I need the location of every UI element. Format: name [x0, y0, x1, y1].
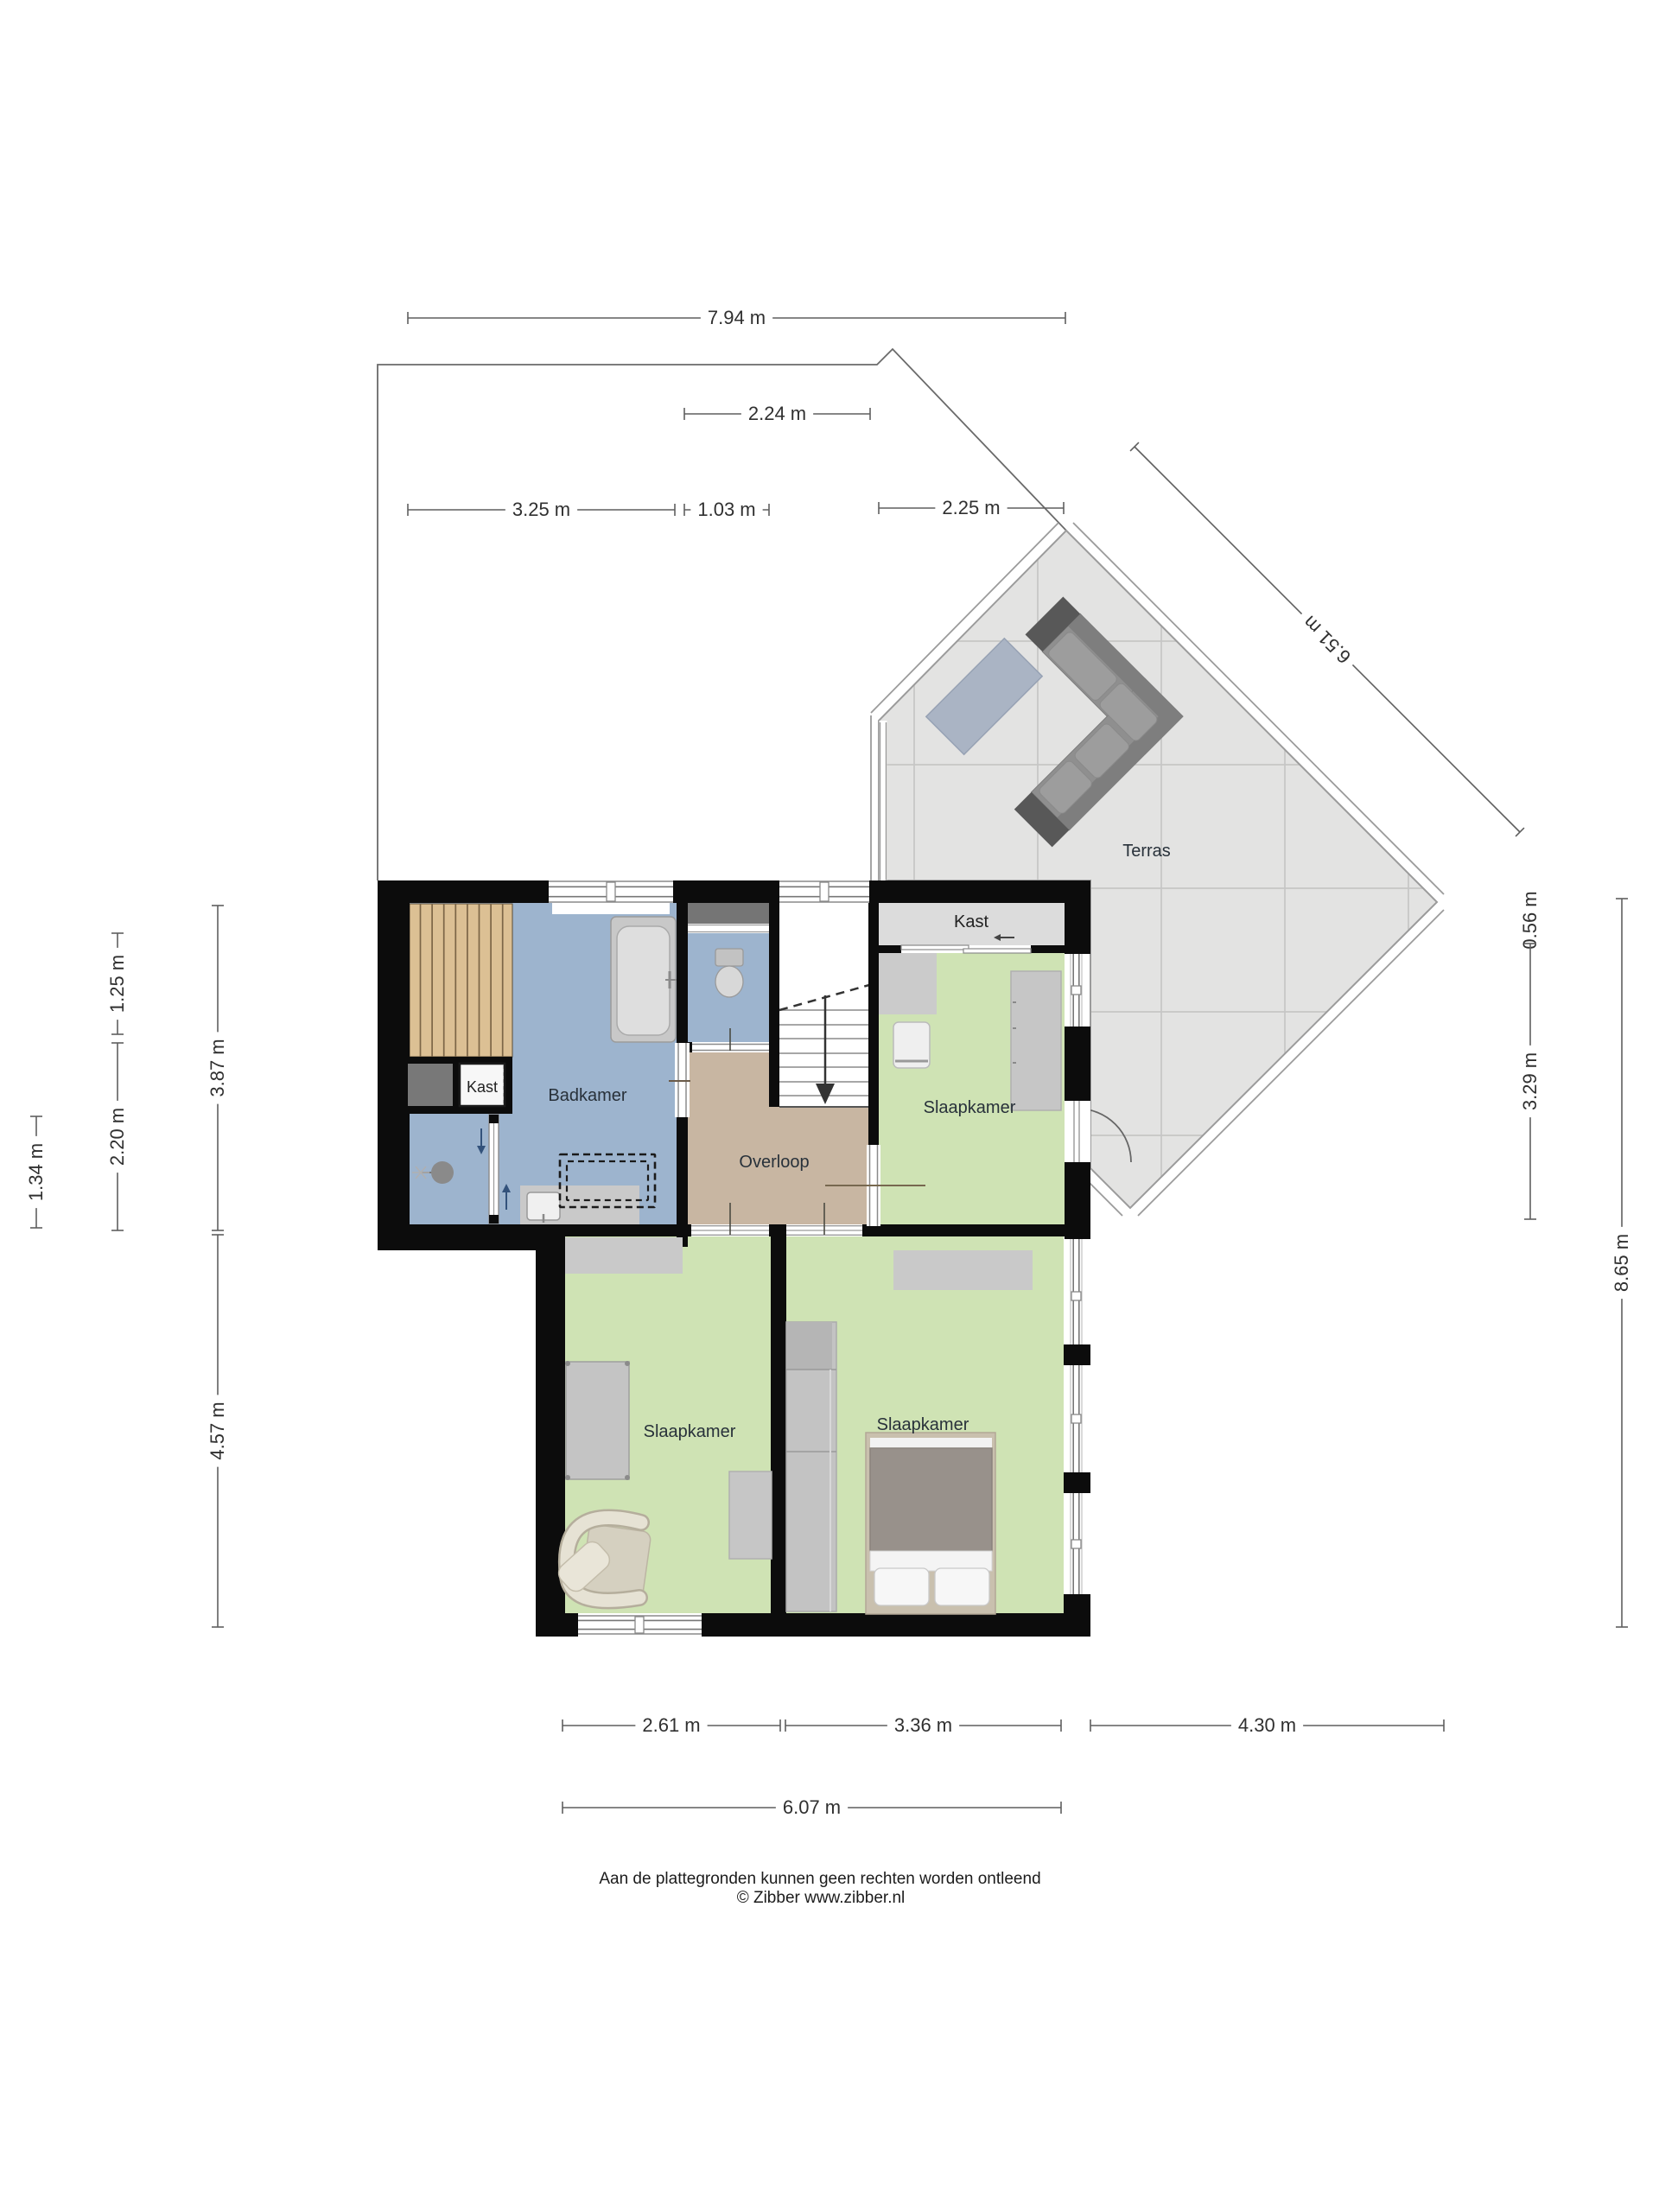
svg-text:2.24 m: 2.24 m	[748, 403, 806, 424]
svg-text:© Zibber www.zibber.nl: © Zibber www.zibber.nl	[737, 1889, 906, 1907]
svg-text:Kast: Kast	[467, 1078, 498, 1096]
svg-text:4.30 m: 4.30 m	[1238, 1714, 1296, 1736]
svg-text:Aan de plattegronden kunnen ge: Aan de plattegronden kunnen geen rechten…	[599, 1870, 1040, 1888]
svg-text:7.94 m: 7.94 m	[708, 307, 766, 328]
svg-text:6.07 m: 6.07 m	[783, 1796, 841, 1818]
svg-text:4.57 m: 4.57 m	[207, 1402, 228, 1459]
svg-text:Slaapkamer: Slaapkamer	[644, 1422, 736, 1441]
svg-text:3.25 m: 3.25 m	[512, 499, 570, 520]
svg-text:Overloop: Overloop	[739, 1153, 809, 1172]
svg-text:2.25 m: 2.25 m	[942, 497, 1000, 518]
svg-text:Badkamer: Badkamer	[548, 1086, 626, 1105]
svg-text:3.87 m: 3.87 m	[207, 1039, 228, 1096]
svg-text:1.34 m: 1.34 m	[25, 1143, 47, 1201]
svg-text:Slaapkamer: Slaapkamer	[877, 1415, 969, 1434]
svg-text:8.65 m: 8.65 m	[1611, 1234, 1632, 1292]
svg-text:Terras: Terras	[1122, 842, 1171, 861]
svg-text:2.20 m: 2.20 m	[106, 1108, 128, 1166]
svg-text:3.29 m: 3.29 m	[1519, 1052, 1541, 1110]
svg-text:Slaapkamer: Slaapkamer	[924, 1098, 1016, 1117]
svg-text:1.25 m: 1.25 m	[106, 955, 128, 1013]
svg-text:0.56 m: 0.56 m	[1519, 891, 1541, 949]
svg-text:2.61 m: 2.61 m	[642, 1714, 700, 1736]
svg-text:3.36 m: 3.36 m	[894, 1714, 952, 1736]
svg-text:Kast: Kast	[954, 912, 988, 931]
svg-text:1.03 m: 1.03 m	[697, 499, 755, 520]
